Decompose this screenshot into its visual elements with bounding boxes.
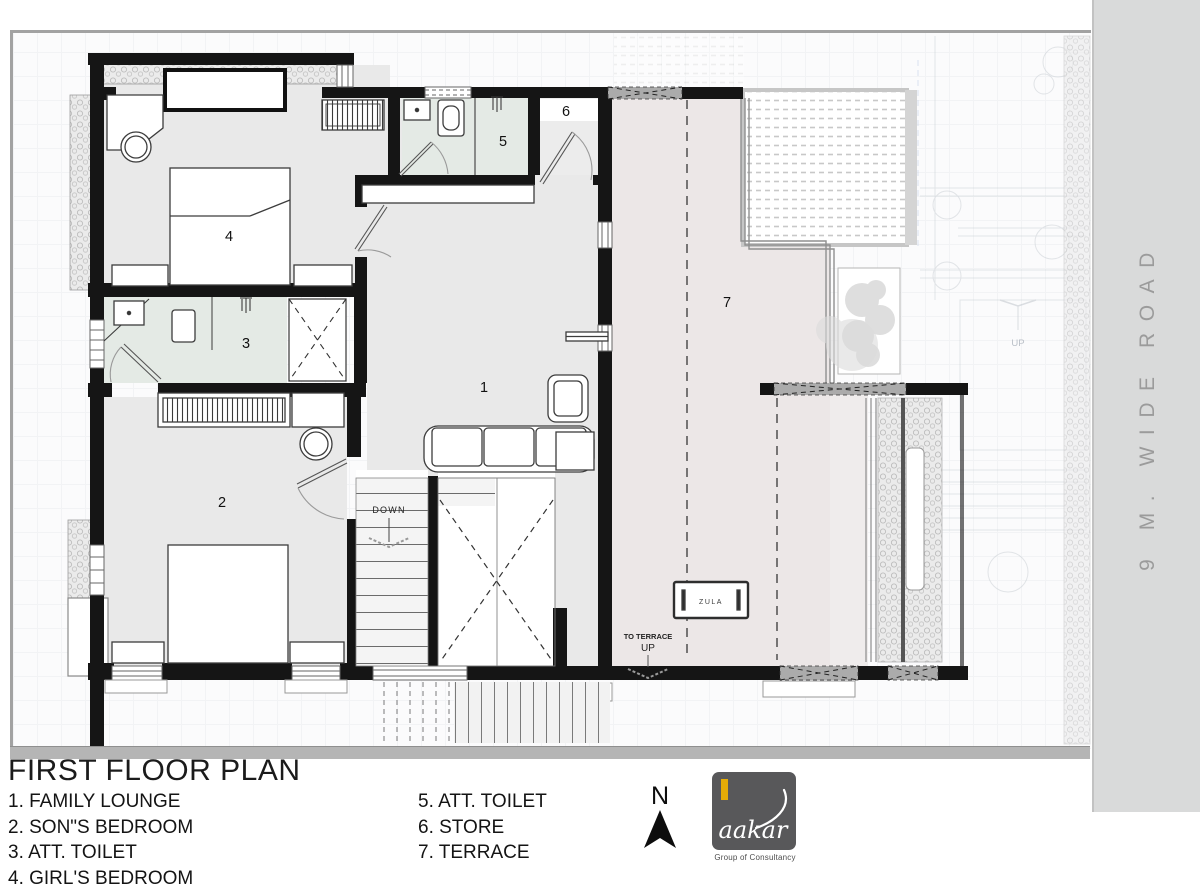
armchair — [548, 375, 588, 422]
legend-item: 6. STORE — [418, 815, 547, 841]
legend-item: 7. TERRACE — [418, 840, 547, 866]
wc — [172, 310, 195, 342]
svg-text:DOWN: DOWN — [372, 505, 405, 515]
legend-item: 5. ATT. TOILET — [418, 789, 547, 815]
room-label-sons-bedroom: 2 — [218, 495, 226, 511]
bed — [168, 545, 288, 663]
room-label-att-toilet-5: 5 — [499, 134, 507, 150]
floor-plan-page: 9 M. WIDE ROAD — [0, 0, 1200, 891]
cabinet — [292, 393, 344, 427]
logo-brand: aakar — [712, 817, 794, 843]
side-table — [112, 642, 164, 663]
svg-text:TO TERRACE: TO TERRACE — [624, 632, 673, 641]
north-label: N — [633, 784, 687, 808]
side-table — [294, 265, 352, 286]
room-label-girls-bedroom: 4 — [225, 229, 233, 245]
washbasin — [404, 100, 430, 120]
round-table — [300, 428, 332, 460]
page-title: FIRST FLOOR PLAN — [8, 756, 301, 786]
legend-item: 4. GIRL'S BEDROOM — [8, 866, 193, 891]
room-label-terrace: 7 — [723, 295, 731, 311]
wardrobe-hatched — [158, 393, 290, 427]
side-table — [112, 265, 168, 286]
exterior-stair-treads — [454, 682, 610, 743]
side-table — [556, 432, 594, 470]
legend-column-1: 1. FAMILY LOUNGE 2. SON"S BEDROOM 3. ATT… — [8, 789, 193, 891]
wc — [438, 100, 464, 136]
shower-icon — [491, 97, 503, 112]
wall-shelf — [566, 332, 608, 341]
room-label-att-toilet-3: 3 — [242, 336, 250, 352]
logo-tagline: Group of Consultancy — [712, 853, 798, 862]
legend-column-2: 5. ATT. TOILET 6. STORE 7. TERRACE — [418, 789, 547, 866]
svg-text:UP: UP — [641, 643, 655, 654]
site-up-label: UP — [1011, 338, 1024, 349]
dresser-hatched — [322, 100, 384, 130]
wardrobe — [165, 70, 285, 110]
side-table — [290, 642, 344, 663]
legend-item: 2. SON"S BEDROOM — [8, 815, 193, 841]
zula-label: ZULA — [699, 599, 723, 606]
north-indicator: N — [633, 784, 687, 855]
bed — [170, 168, 290, 285]
legend-item: 3. ATT. TOILET — [8, 840, 193, 866]
room-label-family-lounge: 1 — [480, 380, 488, 396]
aakar-logo: aakar — [712, 772, 796, 850]
console — [362, 185, 534, 203]
washbasin — [114, 301, 144, 325]
shower-icon — [240, 298, 252, 313]
room-label-store: 6 — [562, 104, 570, 120]
shaft-void — [289, 299, 346, 381]
north-arrow-icon — [638, 808, 682, 850]
legend-item: 1. FAMILY LOUNGE — [8, 789, 193, 815]
